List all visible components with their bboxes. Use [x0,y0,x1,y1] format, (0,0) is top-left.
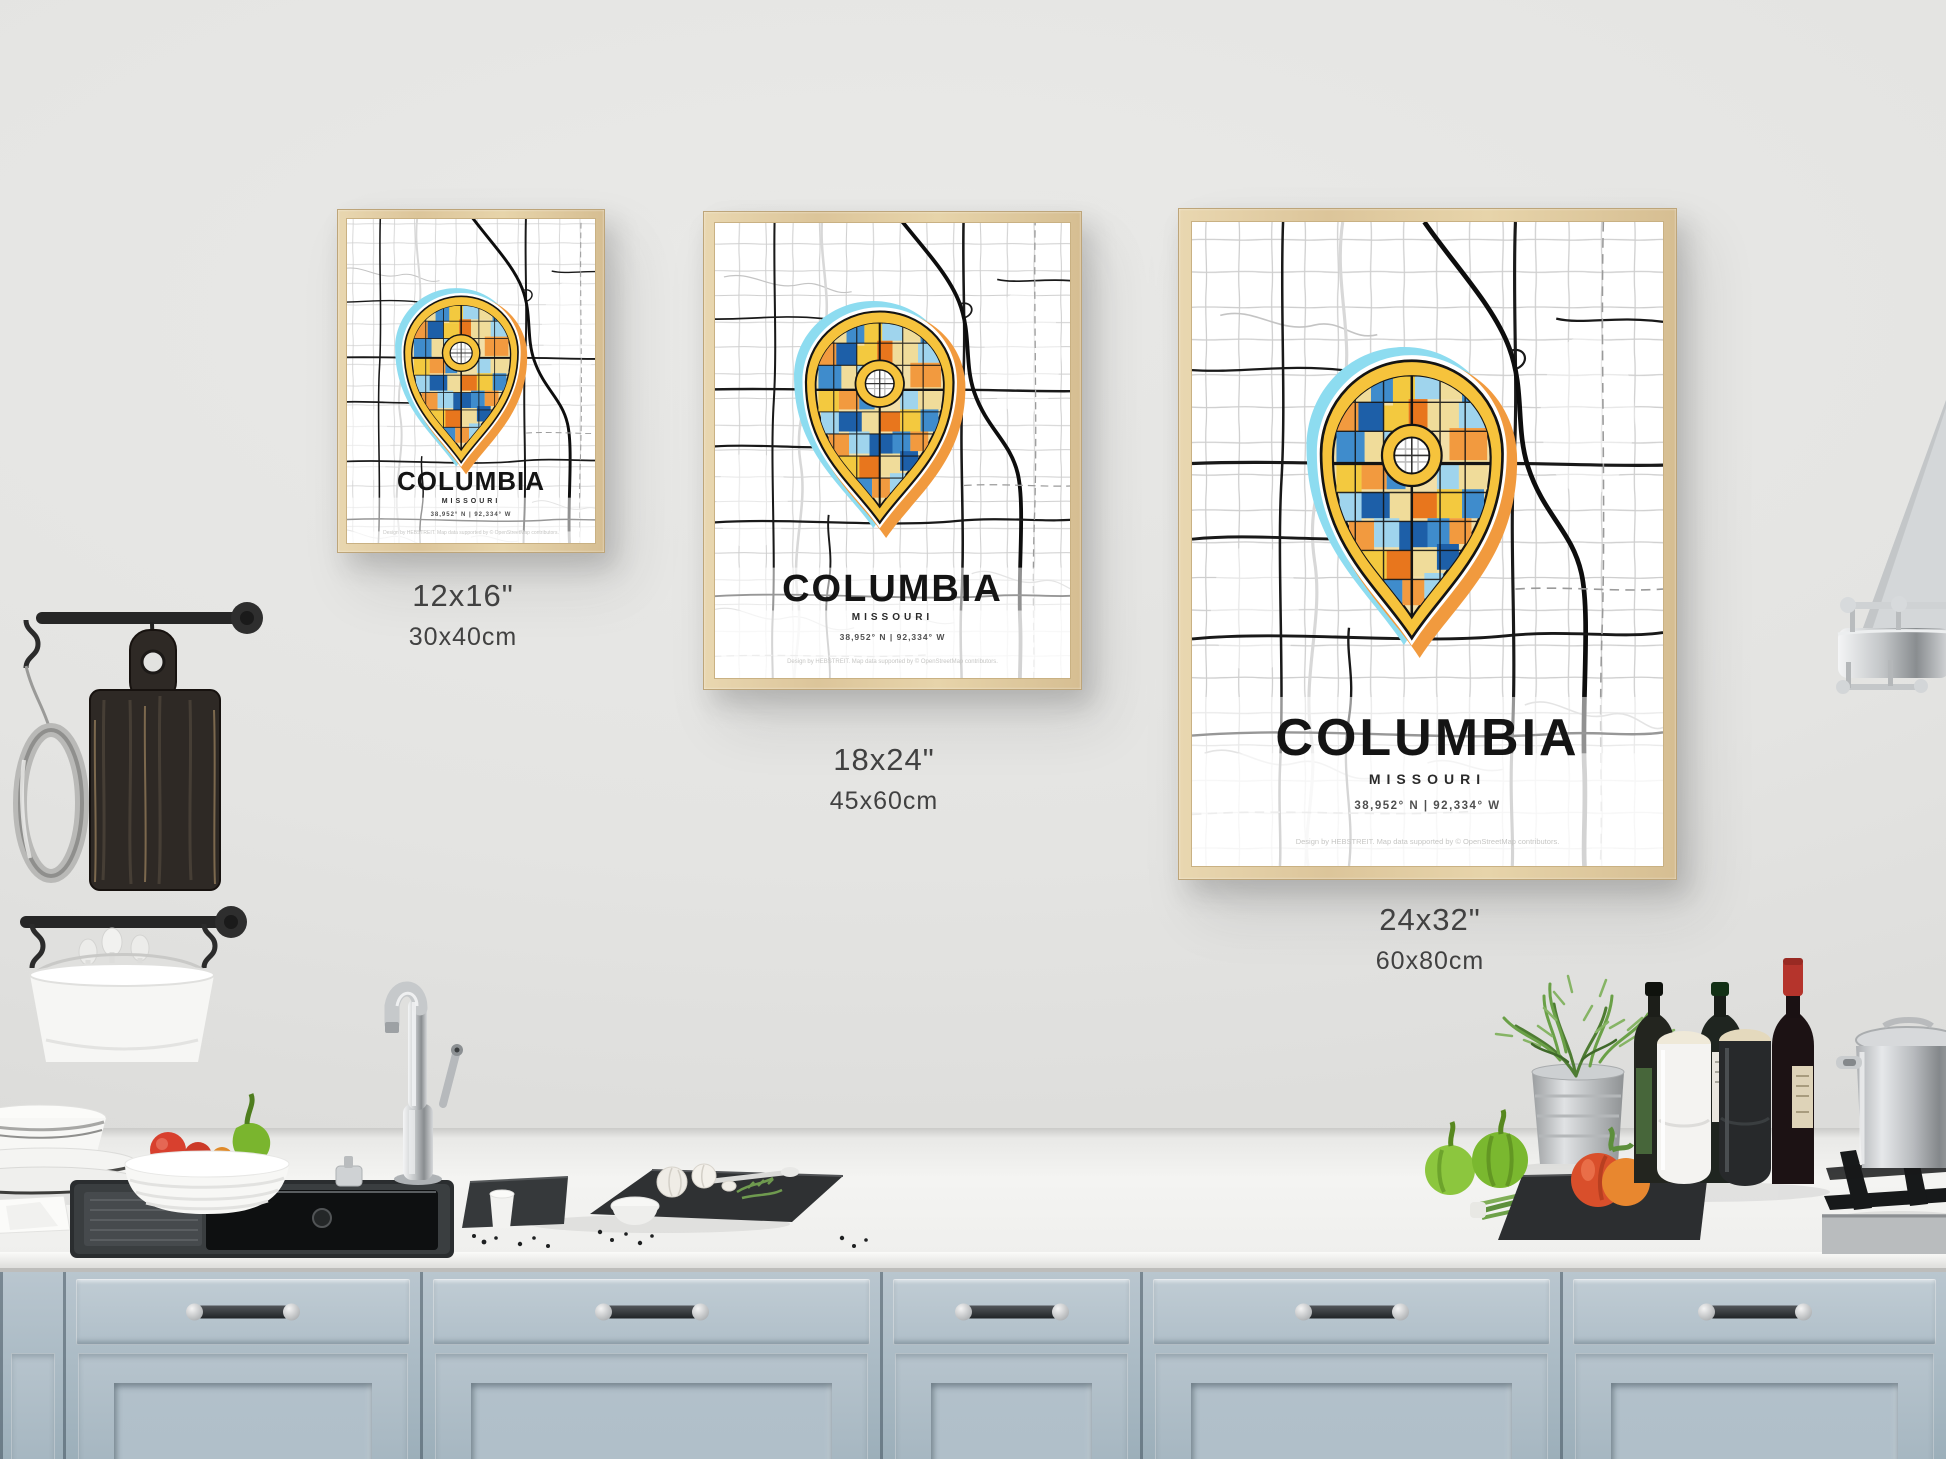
poster-small-12x16: COLUMBIA MISSOURI 38,952° N | 92,334° W … [337,209,605,553]
cabinet-door [435,1353,868,1459]
size-centimeters: 45x60cm [830,787,938,816]
cabinet-unit [1560,1272,1946,1459]
drawer-front [1573,1279,1936,1345]
cabinet-unit [880,1272,1140,1459]
size-inches: 18x24" [830,742,938,778]
drawer-handle [964,1306,1060,1319]
cabinet-stile [0,1272,63,1459]
poster-large-24x32: COLUMBIA MISSOURI 38,952° N | 92,334° W … [1178,208,1677,880]
city-map-artwork [1192,222,1663,866]
poster-paper: COLUMBIA MISSOURI 38,952° N | 92,334° W … [347,219,595,543]
countertop [0,1128,1946,1254]
drawer-handle [195,1306,291,1319]
poster-paper: COLUMBIA MISSOURI 38,952° N | 92,334° W … [1192,222,1663,866]
city-map-artwork [715,223,1070,678]
size-inches: 12x16" [409,578,517,614]
cabinet-door [78,1353,408,1459]
base-cabinets [0,1272,1946,1459]
poster-paper: COLUMBIA MISSOURI 38,952° N | 92,334° W … [715,223,1070,678]
drawer-front [433,1279,870,1345]
size-inches: 24x32" [1376,902,1484,938]
drawer-front [893,1279,1130,1345]
drawer-front [1153,1279,1550,1345]
drawer-front [76,1279,410,1345]
cabinet-door [1155,1353,1548,1459]
cabinet-door [1575,1353,1934,1459]
kitchen-product-scene: COLUMBIA MISSOURI 38,952° N | 92,334° W … [0,0,1946,1459]
size-label-18x24: 18x24" 45x60cm [830,742,938,816]
drawer-handle [604,1306,700,1319]
drawer-handle [1707,1306,1803,1319]
poster-medium-18x24: COLUMBIA MISSOURI 38,952° N | 92,334° W … [703,211,1082,690]
size-centimeters: 30x40cm [409,623,517,652]
cabinet-unit [420,1272,880,1459]
city-map-artwork [347,219,595,543]
size-label-12x16: 12x16" 30x40cm [409,578,517,652]
size-centimeters: 60x80cm [1376,947,1484,976]
cabinet-unit [63,1272,420,1459]
drawer-handle [1304,1306,1400,1319]
cabinet-unit [1140,1272,1560,1459]
size-label-24x32: 24x32" 60x80cm [1376,902,1484,976]
cabinet-door [895,1353,1128,1459]
countertop-front-edge [0,1252,1946,1272]
